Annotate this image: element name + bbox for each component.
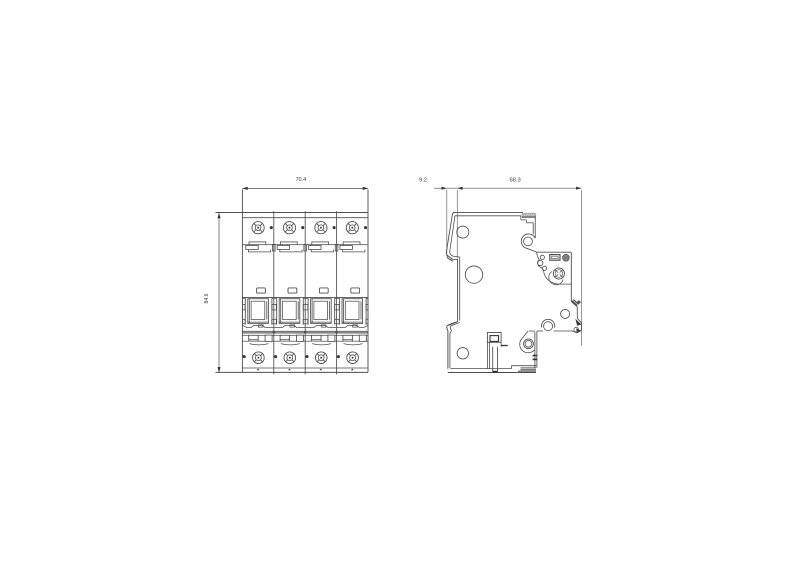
svg-text:84.6: 84.6 <box>204 293 210 303</box>
svg-text:68.3: 68.3 <box>509 177 520 183</box>
svg-text:70.4: 70.4 <box>296 177 307 183</box>
svg-text:9.2: 9.2 <box>419 177 427 183</box>
